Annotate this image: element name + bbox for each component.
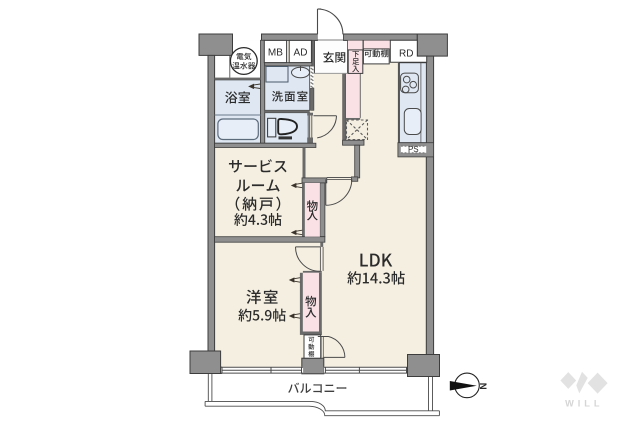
- svg-text:WILL: WILL: [565, 398, 603, 408]
- svg-text:N: N: [477, 383, 488, 390]
- svg-text:RD: RD: [399, 48, 413, 59]
- svg-text:PS: PS: [408, 145, 419, 154]
- svg-text:MB: MB: [268, 48, 283, 59]
- svg-text:AD: AD: [294, 48, 308, 59]
